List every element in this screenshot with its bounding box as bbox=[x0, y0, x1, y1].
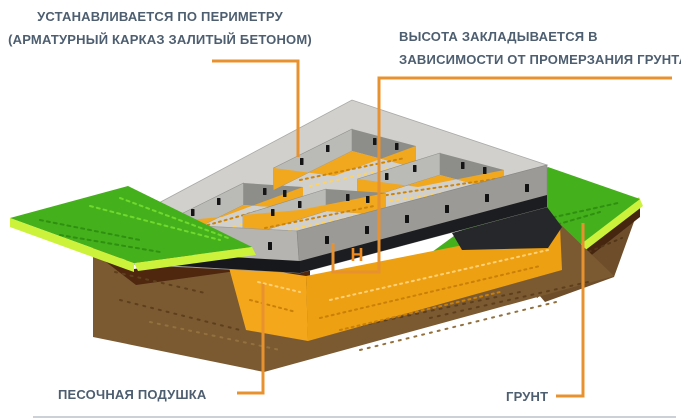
label-soil: ГРУНТ bbox=[506, 385, 548, 408]
label-sand-cushion: ПЕСОЧНАЯ ПОДУШКА bbox=[58, 383, 206, 406]
label-height-line2: ЗАВИСИМОСТИ ОТ ПРОМЕРЗАНИЯ ГРУНТА bbox=[399, 48, 681, 71]
label-height-line1: ВЫСОТА ЗАКЛАДЫВАЕТСЯ В bbox=[399, 25, 681, 48]
label-height: ВЫСОТА ЗАКЛАДЫВАЕТСЯ В ЗАВИСИМОСТИ ОТ ПР… bbox=[399, 25, 681, 71]
height-symbol: Н bbox=[351, 245, 364, 265]
label-perimeter-line2: (АРМАТУРНЫЙ КАРКАЗ ЗАЛИТЫЙ БЕТОНОМ) bbox=[4, 28, 316, 51]
label-perimeter: УСТАНАВЛИВАЕТСЯ ПО ПЕРИМЕТРУ (АРМАТУРНЫЙ… bbox=[4, 5, 316, 51]
foundation-diagram: Н УСТАНАВЛИВАЕТСЯ ПО ПЕРИМЕТРУ (АРМАТУРН… bbox=[0, 0, 681, 420]
label-perimeter-line1: УСТАНАВЛИВАЕТСЯ ПО ПЕРИМЕТРУ bbox=[4, 5, 316, 28]
